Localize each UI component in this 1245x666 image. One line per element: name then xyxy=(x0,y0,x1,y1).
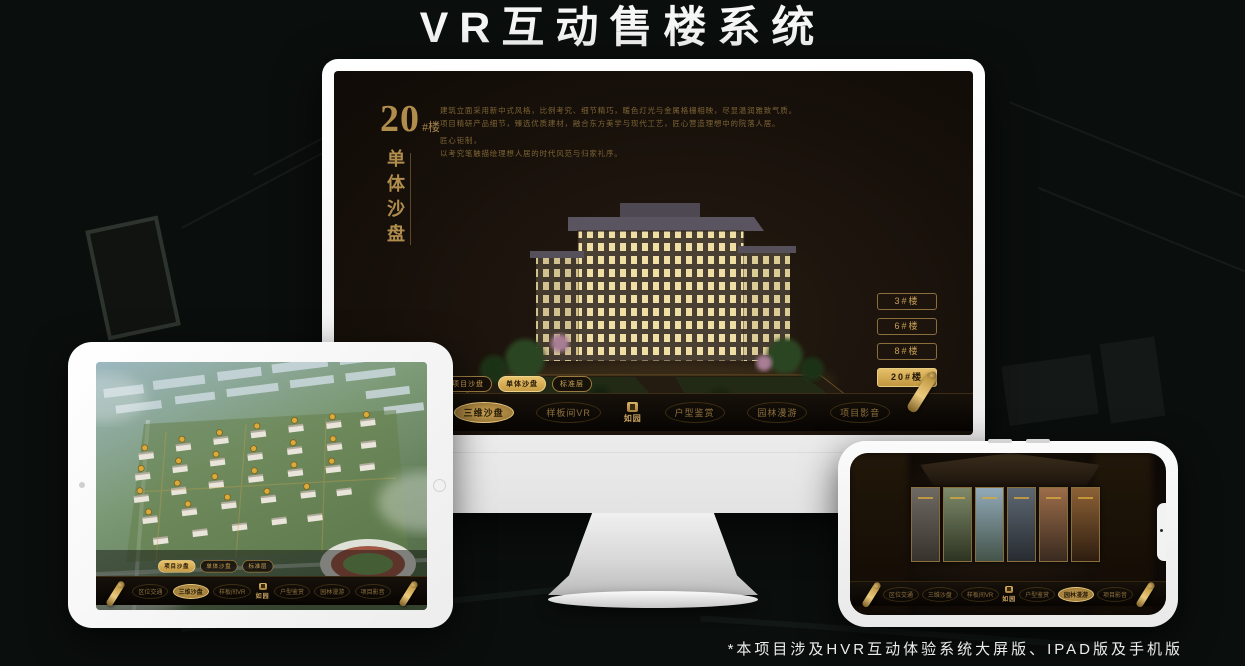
footnote: *本项目涉及HVR互动体验系统大屏版、IPAD版及手机版 xyxy=(728,638,1183,659)
brand-name: 如园 xyxy=(1002,594,1016,603)
phone-screen: 区位交通 三维沙盘 样板间VR 如园 户型鉴赏 园林漫游 项目影音 xyxy=(850,453,1166,615)
tablet-home-button[interactable] xyxy=(433,479,446,492)
building-button[interactable]: 3#楼 xyxy=(877,293,937,310)
brand-name: 如园 xyxy=(624,413,642,424)
sandbox-subtabs: 项目沙盘 单体沙盘 标准层 xyxy=(444,376,592,392)
nav-item-floorplan[interactable]: 户型鉴赏 xyxy=(274,584,310,599)
bg-map-road xyxy=(1038,187,1245,275)
nav-item-location[interactable]: 区位交通 xyxy=(883,587,919,602)
tablet-subtabs: 项目沙盘 单体沙盘 标准层 xyxy=(158,560,273,572)
scene-panel[interactable] xyxy=(975,487,1004,562)
tablet-camera xyxy=(79,482,85,488)
nav-item-media[interactable]: 项目影音 xyxy=(1097,587,1133,602)
building-button[interactable]: 8#楼 xyxy=(877,343,937,360)
building-button[interactable]: 6#楼 xyxy=(877,318,937,335)
brand-logo: 如园 xyxy=(256,583,270,600)
nav-item-floorplan[interactable]: 户型鉴赏 xyxy=(665,402,725,423)
nav-item-showroom-vr[interactable]: 样板间VR xyxy=(961,587,999,602)
subtab-standard-floor[interactable]: 标准层 xyxy=(552,376,592,392)
phone-nav-bar: 区位交通 三维沙盘 样板间VR 如园 户型鉴赏 园林漫游 项目影音 xyxy=(850,581,1166,606)
scene-panel[interactable] xyxy=(1007,487,1036,562)
subtab-standard-floor[interactable]: 标准层 xyxy=(242,560,273,572)
seal-icon xyxy=(1005,586,1013,593)
monitor-base xyxy=(548,591,758,608)
page-title: VR互动售楼系统 xyxy=(0,0,1245,56)
seal-icon xyxy=(259,583,267,590)
description-line: 以考究笔触描绘理想人居的时代风范与归家礼序。 xyxy=(440,147,870,160)
brand-logo: 如园 xyxy=(1002,586,1016,603)
monitor-stand xyxy=(548,513,758,595)
bg-building-block xyxy=(1100,337,1166,424)
subtab-project-sandbox[interactable]: 项目沙盘 xyxy=(158,560,195,572)
nav-item-showroom-vr[interactable]: 样板间VR xyxy=(536,402,601,423)
nav-item-showroom-vr[interactable]: 样板间VR xyxy=(213,584,251,599)
scene-panel[interactable] xyxy=(943,487,972,562)
tablet-screen: 项目沙盘 单体沙盘 标准层 区位交通 三维沙盘 样板间VR 如园 户型鉴赏 园林… xyxy=(96,362,427,610)
building-number: 20 xyxy=(380,98,420,140)
building-headline: 20#楼 xyxy=(380,97,440,141)
phone-volume-button[interactable] xyxy=(988,439,1012,443)
subtab-single-sandbox[interactable]: 单体沙盘 xyxy=(200,560,237,572)
gate-silhouette xyxy=(920,453,1100,487)
nav-item-sandbox[interactable]: 三维沙盘 xyxy=(922,587,958,602)
description-line: 匠心钜制， xyxy=(440,134,870,147)
gold-rule xyxy=(410,153,411,245)
project-description: 建筑立面采用新中式风格，比例考究、细节精巧，暖色灯光与金属格栅相映，尽显温润雅致… xyxy=(440,104,870,160)
phone-notch xyxy=(1157,503,1166,561)
subtab-single-sandbox[interactable]: 单体沙盘 xyxy=(498,376,546,392)
building-number-suffix: #楼 xyxy=(422,120,440,134)
section-title-vertical: 单体沙盘 xyxy=(382,149,408,249)
bg-building-block xyxy=(1001,354,1098,426)
bg-framed-plaque xyxy=(85,216,181,341)
nav-item-media[interactable]: 项目影音 xyxy=(355,584,391,599)
description-line: 建筑立面采用新中式风格，比例考究、细节精巧，暖色灯光与金属格栅相映，尽显温润雅致… xyxy=(440,104,870,117)
nav-item-sandbox[interactable]: 三维沙盘 xyxy=(454,402,514,423)
nav-item-garden-tour[interactable]: 园林漫游 xyxy=(1058,587,1094,602)
bg-map-road xyxy=(1009,101,1245,200)
nav-item-floorplan[interactable]: 户型鉴赏 xyxy=(1019,587,1055,602)
nav-item-garden-tour[interactable]: 园林漫游 xyxy=(314,584,350,599)
phone-volume-button[interactable] xyxy=(1026,439,1050,443)
aerial-masterplan-render[interactable] xyxy=(96,362,427,610)
promo-canvas: VR互动售楼系统 20#楼 单体沙盘 建筑立面采用新中式风格，比例考究、细节精巧… xyxy=(0,0,1245,666)
brand-logo: 如园 xyxy=(624,402,642,424)
nav-item-location[interactable]: 区位交通 xyxy=(132,584,168,599)
scene-panel[interactable] xyxy=(1039,487,1068,562)
nav-item-garden-tour[interactable]: 园林漫游 xyxy=(747,402,807,423)
nav-item-media[interactable]: 项目影音 xyxy=(830,402,890,423)
scene-gallery xyxy=(911,487,1100,562)
description-line: 项目精研产品细节，臻选优质建材，融合东方美学与现代工艺，匠心营造理想中的院落人居… xyxy=(440,117,870,130)
seal-icon xyxy=(627,402,638,412)
scene-panel[interactable] xyxy=(1071,487,1100,562)
tablet-nav-bar: 区位交通 三维沙盘 样板间VR 如园 户型鉴赏 园林漫游 项目影音 xyxy=(96,576,427,605)
nav-item-sandbox[interactable]: 三维沙盘 xyxy=(173,584,209,599)
scene-panel[interactable] xyxy=(911,487,940,562)
brand-name: 如园 xyxy=(256,591,270,600)
